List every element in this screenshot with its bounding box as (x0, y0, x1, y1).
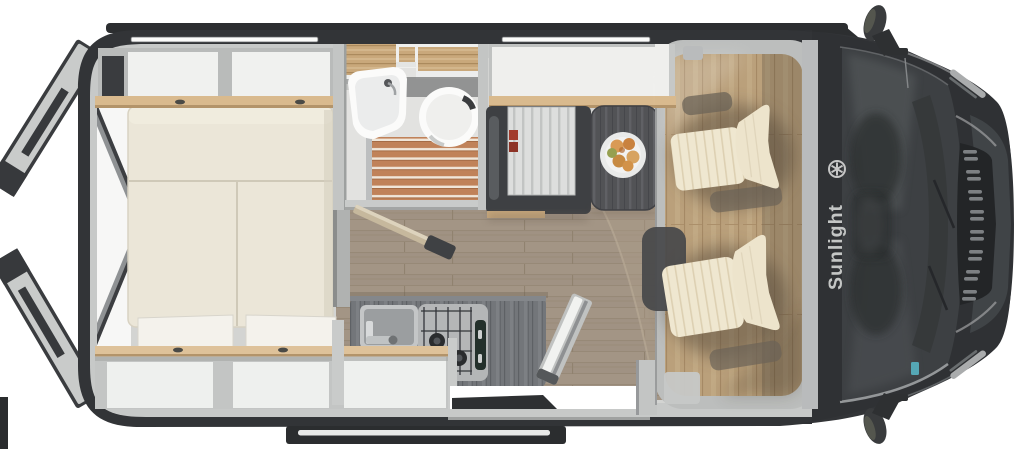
svg-text:Sunlight: Sunlight (825, 204, 847, 290)
